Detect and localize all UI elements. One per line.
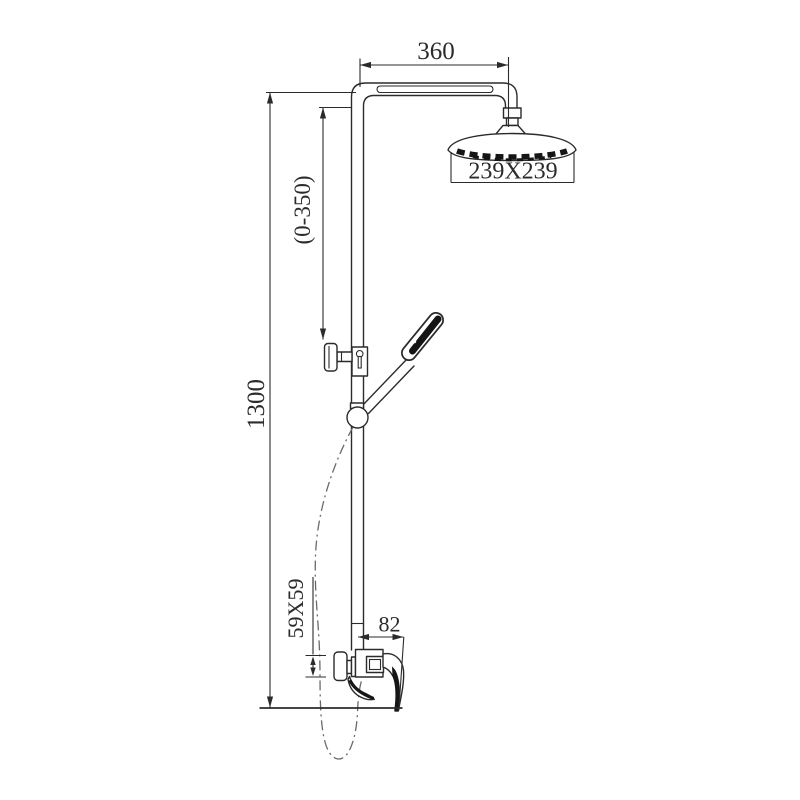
dim-escutcheon-size-label: 59X59	[283, 579, 308, 639]
mixer-valve	[334, 650, 404, 712]
slider-assembly	[325, 344, 368, 377]
slider-knob	[325, 344, 338, 372]
dim-mixer-depth-label: 82	[379, 612, 401, 637]
arm-highlight	[377, 86, 493, 93]
hand-shower-pivot-dot	[413, 340, 416, 343]
dim-arm-length-label: 360	[417, 38, 455, 65]
drawing-canvas: 360 239X239 1300 (0-350)	[0, 0, 800, 800]
dim-head-size-label: 239X239	[468, 159, 557, 185]
dim-slider-range: (0-350)	[290, 108, 352, 340]
dim-slider-range-label: (0-350)	[290, 176, 315, 245]
dim-total-height-label: 1300	[243, 379, 270, 429]
shower-hose	[315, 427, 362, 759]
shower-technical-drawing: 360 239X239 1300 (0-350)	[0, 0, 800, 800]
slider-shaft	[337, 352, 352, 362]
overhead-shower-head	[448, 134, 576, 161]
holder-ball-joint	[347, 407, 368, 428]
overhead-shower-connector	[496, 108, 527, 135]
wall-escutcheon	[334, 652, 347, 681]
